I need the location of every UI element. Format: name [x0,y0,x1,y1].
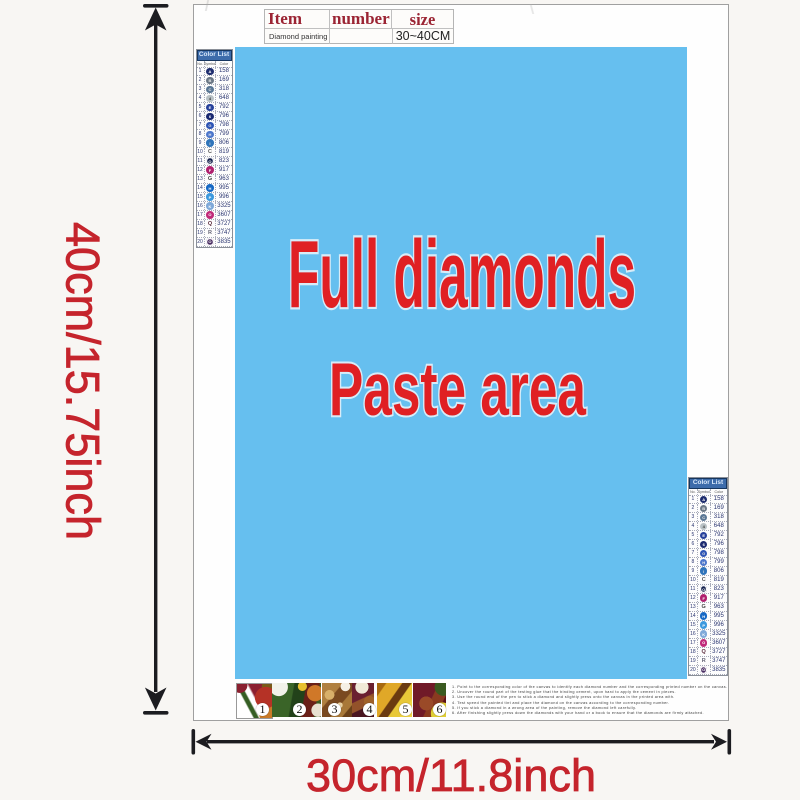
svg-text:Paste area: Paste area [329,347,587,431]
svg-text:40cm/15.75inch: 40cm/15.75inch [57,222,110,540]
svg-text:Full diamonds: Full diamonds [288,221,636,328]
svg-text:30cm/11.8inch: 30cm/11.8inch [306,750,596,800]
